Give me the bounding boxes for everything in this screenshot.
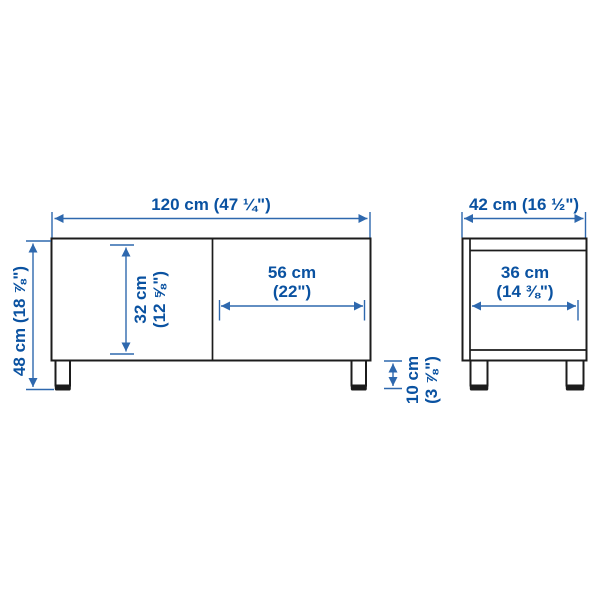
dimension-overall-width: 120 cm (47 ¼"): [52, 195, 370, 238]
side-left-leg-foot: [470, 385, 489, 391]
leg-height-label-in: (3 ⅞"): [422, 356, 441, 404]
overall-depth-label: 42 cm (16 ½"): [469, 195, 579, 214]
side-left-leg: [471, 361, 488, 386]
door-width-label-cm: 56 cm: [268, 263, 316, 282]
side-right-leg-foot: [566, 385, 585, 391]
door-width-label-in: (22"): [273, 282, 311, 301]
inner-depth-label-cm: 36 cm: [501, 263, 549, 282]
front-cabinet-outline: [52, 239, 371, 361]
side-right-leg: [567, 361, 584, 386]
front-right-leg-foot: [351, 385, 367, 391]
front-view: 120 cm (47 ¼") 48 cm (18 ⅞") 32 cm (12 ⅝…: [10, 195, 441, 404]
inner-height-label-in: (12 ⅝"): [150, 271, 169, 328]
dimension-leg-height: 10 cm (3 ⅞"): [384, 356, 441, 404]
inner-height-label-cm: 32 cm: [131, 275, 150, 323]
front-left-leg: [56, 361, 71, 386]
side-view: 42 cm (16 ½") 36 cm (14 ⅜"): [462, 195, 587, 391]
front-left-leg-foot: [55, 385, 71, 391]
leg-height-label-cm: 10 cm: [403, 356, 422, 404]
front-right-leg: [352, 361, 367, 386]
inner-depth-label-in: (14 ⅜"): [496, 282, 553, 301]
overall-height-label: 48 cm (18 ⅞"): [10, 266, 29, 376]
dimension-overall-height: 48 cm (18 ⅞"): [10, 241, 54, 390]
dimension-overall-depth: 42 cm (16 ½"): [462, 195, 586, 238]
overall-width-label: 120 cm (47 ¼"): [151, 195, 271, 214]
furniture-dimension-diagram: 120 cm (47 ¼") 48 cm (18 ⅞") 32 cm (12 ⅝…: [0, 0, 600, 600]
